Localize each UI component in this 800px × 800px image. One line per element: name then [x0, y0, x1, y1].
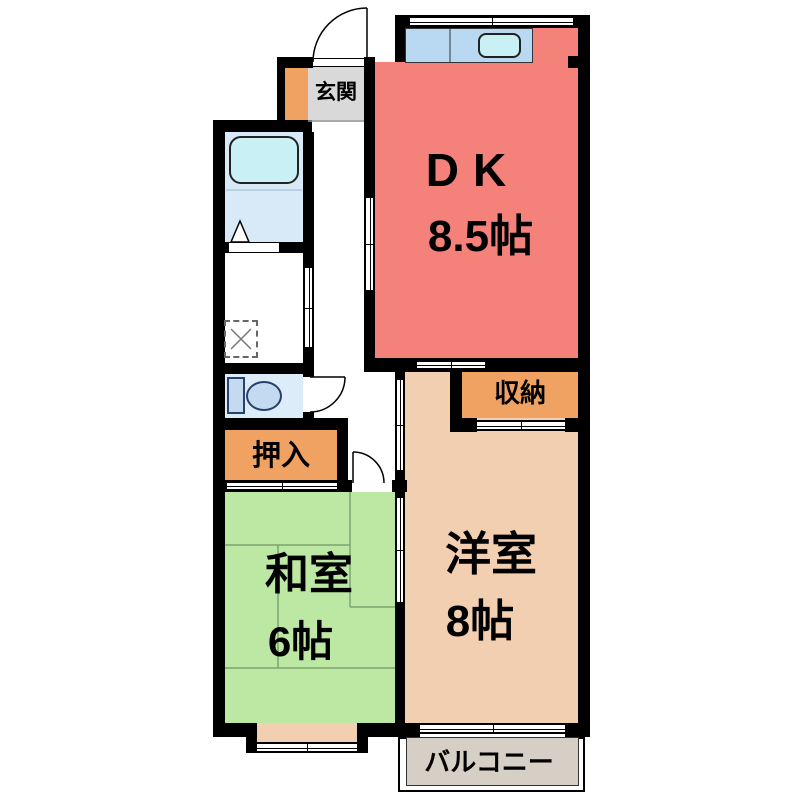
entrance-door-opening [313, 58, 364, 67]
washitsu-bay-window [257, 742, 357, 753]
kitchen-sink [478, 33, 521, 58]
kitchen-window [410, 16, 573, 27]
wall-cabinet-left [277, 57, 285, 122]
bath-door-opening [229, 243, 279, 252]
room-dk [375, 62, 578, 358]
youshitsu-label: 洋室 [412, 530, 570, 578]
washitsu-label: 和室 [230, 552, 388, 598]
wall-bay-right [357, 723, 368, 753]
genkan-label: 玄関 [305, 82, 367, 104]
dk-size-label: 8.5帖 [398, 214, 563, 260]
toilet-bowl [246, 381, 282, 411]
wall-bath-top [213, 120, 312, 132]
hall-washroom-sliding-door [303, 268, 314, 347]
toilet-door-arc [310, 377, 345, 412]
toilet-tank [227, 377, 245, 414]
bay-window-floor [257, 723, 357, 742]
oshiire-sliding-door [227, 481, 337, 491]
wall-washitsu-bottom-right [368, 723, 407, 737]
hall-youshitsu-sliding-door [395, 380, 405, 470]
dk-youshitsu-sliding-door [417, 360, 485, 370]
wall-youshitsu-bottom-left [405, 723, 420, 737]
wall-shuunou-bottom-right [565, 418, 578, 432]
wall-bay-left [246, 723, 257, 753]
hall-dk-sliding-door [364, 198, 375, 290]
washitsu-door-arc [353, 452, 384, 483]
oshiire-label: 押入 [225, 441, 337, 471]
wall-youshitsu-bottom-right [565, 723, 590, 737]
dk-label: DK [398, 146, 548, 194]
youshitsu-balcony-window [420, 723, 565, 734]
wall-bath-right [303, 132, 314, 253]
wall-shuunou-bottom-left [462, 418, 477, 432]
room-washitsu [225, 492, 395, 723]
wall-toilet-bottom [213, 418, 348, 430]
wall-right-pier [568, 56, 578, 68]
floorplan-canvas: 玄関 DK 8.5帖 収納 押入 和室 6帖 洋室 8帖 バルコニー [0, 0, 800, 800]
shuunou-label: 収納 [462, 380, 578, 407]
washer-pan [224, 320, 258, 358]
youshitsu-size-label: 8帖 [410, 599, 550, 645]
wall-shuunou-left [450, 372, 462, 432]
entrance-door-arc [313, 8, 367, 62]
wall-washroom-bottom [213, 363, 314, 374]
washitsu-size-label: 6帖 [228, 620, 373, 664]
shuunou-sliding-door [477, 420, 565, 431]
wall-right-outer [578, 15, 590, 737]
toilet-door-opening [303, 377, 314, 412]
bathtub [229, 136, 299, 184]
balcony-label: バルコニー [400, 749, 578, 776]
hall-washitsu-door-opening [352, 480, 392, 492]
wall-washitsu-bottom-left [213, 723, 246, 737]
washitsu-youshitsu-sliding-door [395, 498, 405, 602]
